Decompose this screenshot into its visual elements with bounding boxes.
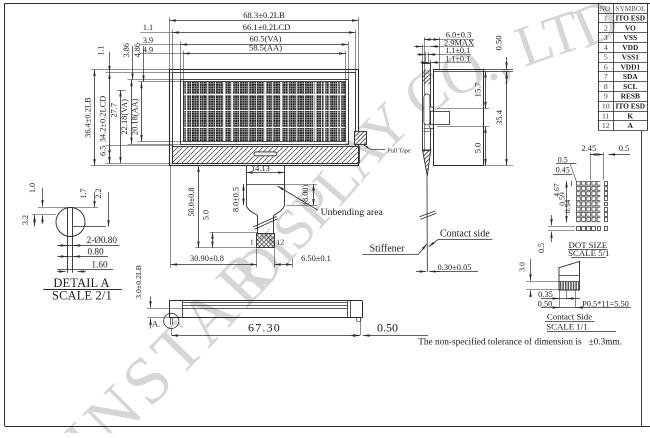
svg-text:0.54: 0.54 xyxy=(563,200,572,214)
svg-text:8.0±0.5: 8.0±0.5 xyxy=(232,187,241,212)
svg-text:30.90±0.8: 30.90±0.8 xyxy=(190,254,224,263)
svg-text:3.2: 3.2 xyxy=(21,215,30,225)
svg-text:1.1: 1.1 xyxy=(97,45,106,55)
svg-text:1: 1 xyxy=(604,14,608,23)
svg-text:2.45: 2.45 xyxy=(581,144,596,153)
svg-text:0.35: 0.35 xyxy=(538,290,553,299)
svg-text:1: 1 xyxy=(250,237,254,246)
svg-text:VDD1: VDD1 xyxy=(620,62,640,71)
svg-text:0.5: 0.5 xyxy=(558,155,568,164)
svg-text:SCALE 1/1: SCALE 1/1 xyxy=(546,321,587,331)
svg-text:0.50: 0.50 xyxy=(494,35,504,50)
svg-text:2: 2 xyxy=(604,23,608,32)
svg-text:VSS1: VSS1 xyxy=(622,53,640,62)
svg-text:12: 12 xyxy=(276,237,284,246)
svg-text:68.3±0.2LB: 68.3±0.2LB xyxy=(243,10,285,20)
svg-text:1.1: 1.1 xyxy=(143,23,153,32)
svg-text:2.2: 2.2 xyxy=(94,188,103,198)
svg-text:SCALE 5/1: SCALE 5/1 xyxy=(568,248,609,258)
svg-text:A: A xyxy=(628,121,634,130)
svg-text:Contact side: Contact side xyxy=(440,229,490,240)
svg-text:5.0: 5.0 xyxy=(472,143,482,154)
svg-text:6: 6 xyxy=(604,62,608,71)
svg-text:10: 10 xyxy=(602,102,610,111)
svg-text:SCL: SCL xyxy=(623,82,637,91)
svg-text:14.13: 14.13 xyxy=(251,164,270,173)
svg-text:0.50: 0.50 xyxy=(377,321,398,335)
svg-text:K: K xyxy=(627,111,633,120)
svg-text:0.5: 0.5 xyxy=(537,243,546,253)
svg-text:VDD: VDD xyxy=(622,43,638,52)
svg-text:36.4±0.2LB: 36.4±0.2LB xyxy=(83,97,92,138)
svg-text:SCALE 2/1: SCALE 2/1 xyxy=(52,288,112,302)
svg-text:VO: VO xyxy=(625,23,636,32)
svg-text:1.7: 1.7 xyxy=(79,188,88,198)
svg-text:4.86: 4.86 xyxy=(133,43,142,57)
svg-text:1.1±0.1: 1.1±0.1 xyxy=(445,54,470,63)
svg-text:SDA: SDA xyxy=(623,72,638,81)
svg-text:6.50±0.1: 6.50±0.1 xyxy=(301,254,331,263)
svg-text:27.7: 27.7 xyxy=(110,103,119,118)
svg-text:8: 8 xyxy=(604,82,608,91)
svg-text:The non-specified tolerance of: The non-specified tolerance of dimension… xyxy=(418,337,622,348)
svg-text:50.0±0.8: 50.0±0.8 xyxy=(187,187,196,216)
svg-text:Unbending area: Unbending area xyxy=(321,207,384,218)
svg-text:15.7: 15.7 xyxy=(472,82,482,98)
svg-text:(8.00): (8.00) xyxy=(301,185,310,205)
svg-text:SYMBOL: SYMBOL xyxy=(616,5,646,13)
svg-text:VSS: VSS xyxy=(624,33,638,42)
svg-text:20.18(AA): 20.18(AA) xyxy=(131,98,140,135)
svg-text:67.30: 67.30 xyxy=(248,321,281,335)
svg-text:3.9: 3.9 xyxy=(143,36,153,45)
svg-text:9: 9 xyxy=(604,92,608,101)
svg-text:0.30±0.05: 0.30±0.05 xyxy=(438,263,472,272)
svg-text:58.5(AA): 58.5(AA) xyxy=(249,43,282,53)
svg-text:RESB: RESB xyxy=(621,92,640,101)
svg-text:11: 11 xyxy=(602,111,610,120)
svg-text:Contact Side: Contact Side xyxy=(547,311,592,321)
svg-text:ITO ESD: ITO ESD xyxy=(615,102,645,111)
svg-text:66.1±0.2LCD: 66.1±0.2LCD xyxy=(243,22,291,32)
svg-text:0.45: 0.45 xyxy=(556,166,570,175)
svg-text:35.4: 35.4 xyxy=(494,109,504,125)
svg-text:1.0: 1.0 xyxy=(28,183,37,193)
svg-text:2-Ø0.80: 2-Ø0.80 xyxy=(87,235,118,245)
svg-text:7: 7 xyxy=(604,72,608,81)
svg-text:Stiffener: Stiffener xyxy=(370,244,405,255)
svg-text:1.60: 1.60 xyxy=(91,260,107,270)
svg-text:34.2±0.2LCD: 34.2±0.2LCD xyxy=(98,96,107,142)
svg-text:3.0: 3.0 xyxy=(518,262,527,272)
svg-text:4.9: 4.9 xyxy=(143,45,153,54)
svg-text:NO.: NO. xyxy=(600,5,612,13)
svg-text:5: 5 xyxy=(604,53,608,62)
svg-text:ITO ESD: ITO ESD xyxy=(615,14,645,23)
svg-text:3.86: 3.86 xyxy=(122,43,131,57)
svg-text:P0.5*11=5.50: P0.5*11=5.50 xyxy=(582,299,629,308)
svg-text:3: 3 xyxy=(604,33,608,42)
svg-text:22.18(VA): 22.18(VA) xyxy=(120,99,129,135)
svg-text:A.: A. xyxy=(152,318,160,328)
svg-text:4: 4 xyxy=(604,43,608,52)
svg-text:Pull Tape: Pull Tape xyxy=(387,147,411,154)
svg-text:12: 12 xyxy=(602,121,610,130)
svg-text:3.0±0.2LB: 3.0±0.2LB xyxy=(134,265,143,299)
svg-text:0.5: 0.5 xyxy=(619,144,629,153)
svg-text:5.0: 5.0 xyxy=(201,210,210,220)
svg-text:0.50: 0.50 xyxy=(538,299,553,308)
svg-text:0.80: 0.80 xyxy=(87,247,103,257)
svg-text:6.5: 6.5 xyxy=(98,146,107,156)
